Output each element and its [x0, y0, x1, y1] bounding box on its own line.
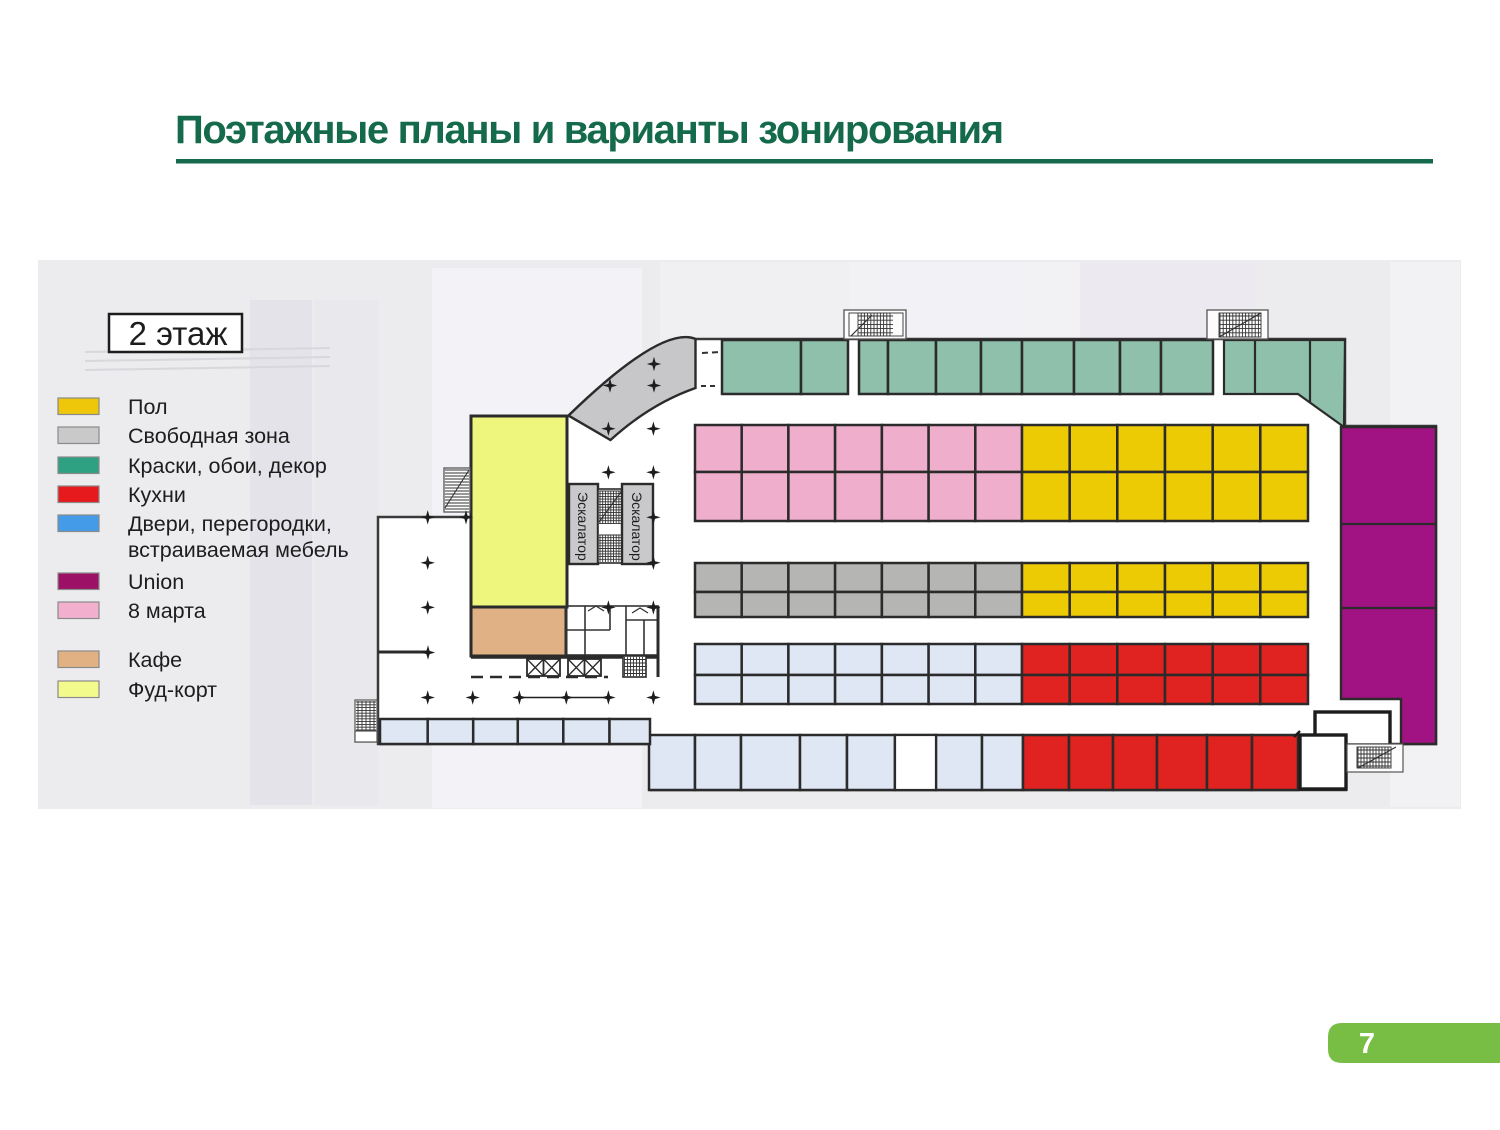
- svg-text:Union: Union: [128, 570, 184, 594]
- svg-text:Кафе: Кафе: [128, 648, 182, 672]
- svg-text:Двери, перегородки,: Двери, перегородки,: [128, 512, 332, 536]
- svg-text:Пол: Пол: [128, 395, 167, 419]
- svg-text:Кухни: Кухни: [128, 483, 186, 507]
- svg-text:8 марта: 8 марта: [128, 599, 206, 623]
- svg-text:Эскалатор: Эскалатор: [629, 492, 645, 561]
- svg-text:встраиваемая мебель: встраиваемая мебель: [128, 538, 349, 562]
- svg-text:7: 7: [1359, 1028, 1375, 1060]
- svg-text:Краски, обои, декор: Краски, обои, декор: [128, 454, 327, 478]
- svg-text:Фуд-корт: Фуд-корт: [128, 678, 217, 702]
- svg-text:Поэтажные планы и варианты зон: Поэтажные планы и варианты зонирования: [175, 108, 1003, 152]
- svg-text:2 этаж: 2 этаж: [129, 315, 228, 352]
- svg-text:Эскалатор: Эскалатор: [575, 492, 591, 561]
- svg-text:Свободная зона: Свободная зона: [128, 424, 290, 448]
